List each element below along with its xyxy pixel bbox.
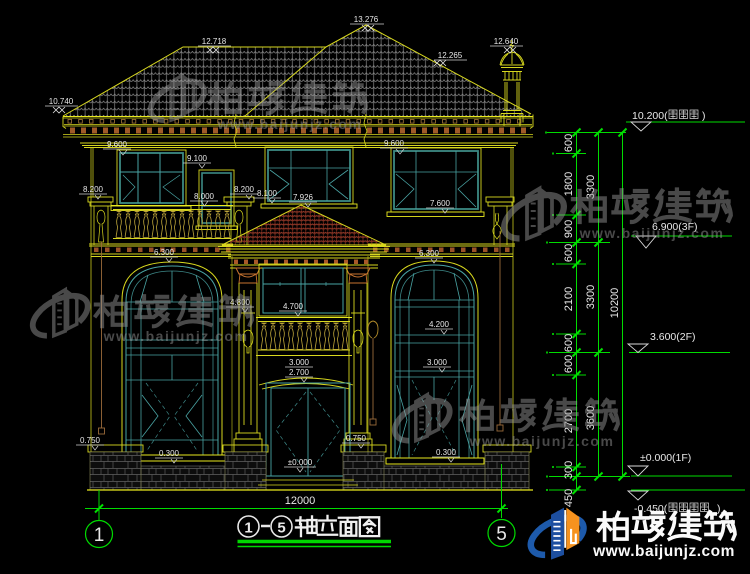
svg-text:12.265: 12.265: [438, 51, 463, 60]
svg-text:450: 450: [563, 489, 575, 507]
svg-text:900: 900: [563, 220, 575, 238]
svg-text:6.300: 6.300: [154, 248, 175, 257]
svg-text:12.640: 12.640: [494, 37, 519, 46]
svg-text:12.718: 12.718: [202, 37, 227, 46]
svg-text:0.300: 0.300: [159, 449, 180, 458]
svg-text:13.276: 13.276: [354, 15, 379, 24]
svg-text:4.200: 4.200: [429, 320, 450, 329]
svg-text:600: 600: [563, 244, 575, 262]
svg-text:±0.000(1F): ±0.000(1F): [640, 452, 691, 464]
svg-text:1800: 1800: [563, 172, 575, 196]
svg-text:10.200(: 10.200(: [632, 110, 668, 122]
svg-text:8.200: 8.200: [234, 185, 255, 194]
svg-text:3.600(2F): 3.600(2F): [650, 331, 696, 343]
svg-text:0.300: 0.300: [436, 448, 457, 457]
svg-text:600: 600: [563, 134, 575, 152]
svg-text:): ): [702, 110, 706, 122]
svg-text:8.000: 8.000: [194, 192, 215, 201]
svg-text:9.100: 9.100: [187, 154, 208, 163]
svg-text:12000: 12000: [285, 495, 316, 507]
svg-text:1: 1: [244, 520, 252, 537]
svg-text:0.750: 0.750: [346, 434, 367, 443]
svg-text:4.700: 4.700: [283, 302, 304, 311]
svg-text:3.000: 3.000: [427, 358, 448, 367]
svg-text:3.000: 3.000: [289, 358, 310, 367]
svg-text:5: 5: [496, 524, 507, 545]
svg-text:7.926: 7.926: [293, 193, 314, 202]
svg-text:600: 600: [563, 334, 575, 352]
svg-text:5: 5: [277, 520, 285, 537]
svg-text:www.baijunjz.com: www.baijunjz.com: [592, 543, 735, 560]
svg-text:0.750: 0.750: [80, 436, 101, 445]
svg-text:2100: 2100: [563, 287, 575, 311]
svg-text:www.baijunjz.com: www.baijunjz.com: [103, 328, 249, 344]
svg-text:8.100: 8.100: [257, 189, 278, 198]
svg-text:2.700: 2.700: [289, 368, 310, 377]
svg-text:7.600: 7.600: [430, 199, 451, 208]
svg-text:±0.000: ±0.000: [288, 458, 313, 467]
svg-text:9.600: 9.600: [384, 139, 405, 148]
svg-text:600: 600: [563, 355, 575, 373]
svg-text:): ): [717, 503, 721, 515]
svg-text:10200: 10200: [609, 288, 621, 319]
svg-text:8.200: 8.200: [83, 185, 104, 194]
svg-text:10.740: 10.740: [49, 97, 74, 106]
svg-text:300: 300: [563, 461, 575, 479]
svg-text:9.600: 9.600: [107, 140, 128, 149]
svg-text:1: 1: [94, 525, 105, 546]
svg-text:www.baijunjz.com: www.baijunjz.com: [579, 225, 725, 241]
svg-text:www.baijunjz.com: www.baijunjz.com: [469, 433, 615, 449]
svg-text:3300: 3300: [585, 285, 597, 309]
svg-text:www.baijunjz.com: www.baijunjz.com: [217, 116, 363, 132]
svg-text:6.300: 6.300: [419, 249, 440, 258]
